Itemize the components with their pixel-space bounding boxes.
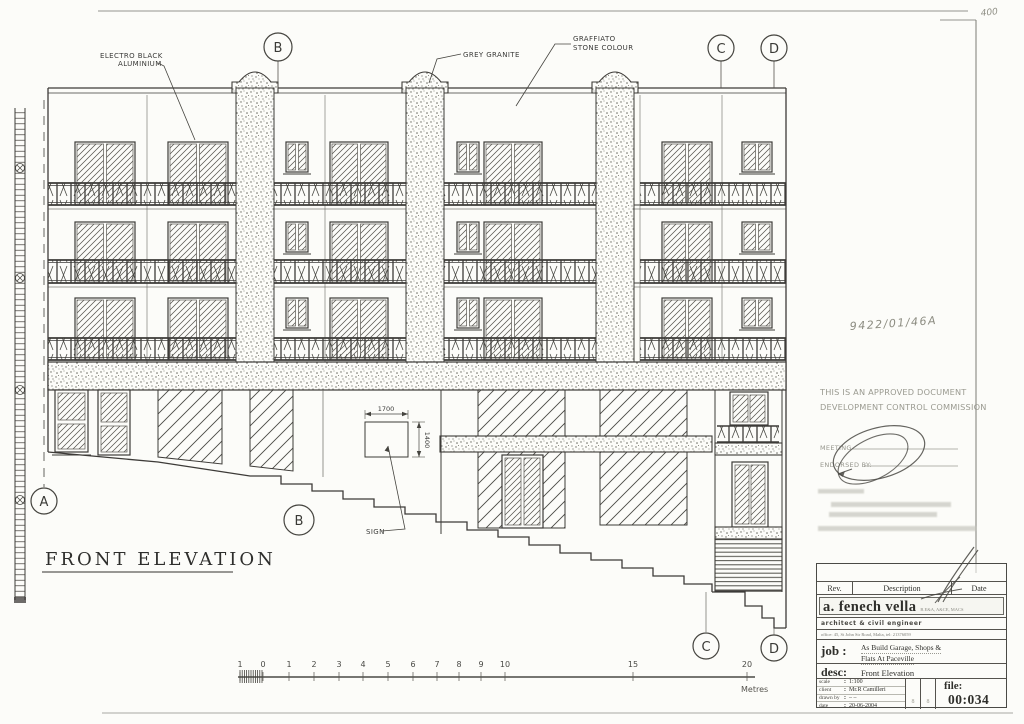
window-pane <box>459 224 467 250</box>
date-header: Date <box>952 582 1006 594</box>
scale-tick: 6 <box>410 660 415 669</box>
scale-tick: 1 <box>286 660 291 669</box>
balcony-railing <box>274 338 406 360</box>
rev-header: Rev. <box>817 582 853 594</box>
desc-label: desc: <box>817 664 861 680</box>
scale-tick: 7 <box>434 660 439 669</box>
file-cell: file: 00:034 <box>936 679 1006 709</box>
window-pane <box>288 224 296 250</box>
job-line-1: As Build Garage, Shops & <box>861 643 941 654</box>
sign-leader <box>382 446 405 531</box>
firm-address: office: 45, St John Str Road, Malta, tel… <box>817 629 1006 639</box>
pilaster <box>596 88 634 362</box>
door-pane <box>58 393 85 420</box>
balcony-railing <box>48 338 236 360</box>
scale-tick: 2 <box>311 660 316 669</box>
drawn-by-label: drawn by <box>817 695 844 701</box>
window-pane <box>735 465 749 524</box>
balcony-railing <box>640 260 786 283</box>
grid-marker-c-bottom: C <box>693 633 719 659</box>
scale-tick: 3 <box>336 660 341 669</box>
description-header: Description <box>853 582 952 594</box>
window-pane <box>744 144 756 170</box>
desc-value: Front Elevation <box>861 668 914 678</box>
window-pane <box>744 224 756 250</box>
revision-header-row: Rev. Description Date <box>817 581 1006 594</box>
grid-label: B <box>295 514 304 529</box>
scale-tick: 15 <box>628 660 638 669</box>
sign-annotation: 1700 1400 SIGN <box>365 405 431 536</box>
sign-width-dim: 1700 <box>378 405 395 413</box>
door-pane <box>58 424 85 449</box>
file-label: file: <box>944 680 962 692</box>
grid-marker-d-top: D <box>761 35 787 88</box>
door-pane <box>101 426 127 452</box>
scale-tick: 5 <box>385 660 390 669</box>
window-pane <box>470 300 478 326</box>
client-label: client <box>817 687 844 693</box>
drawing-title: FRONT ELEVATION <box>45 549 276 570</box>
strip-rungs <box>15 108 25 600</box>
window-pane <box>744 300 756 326</box>
scale-tick: 4 <box>360 660 365 669</box>
label-graffiato: GRAFFIATO <box>573 35 616 43</box>
job-line-2: Flats At Paceville <box>861 654 914 665</box>
firm-name-row: a. fenech vella B.E&A, A&CE, MACS <box>817 594 1006 617</box>
window-pane <box>288 300 296 326</box>
balcony-railing <box>274 183 406 205</box>
firm-role: architect & civil engineer <box>817 617 1006 629</box>
scale-tick: 0 <box>260 660 265 669</box>
drawn-by-value: – – <box>849 695 857 701</box>
scale-label: scale <box>817 679 844 685</box>
firm-credentials: B.E&A, A&CE, MACS <box>920 607 963 612</box>
stamp-line-2: DEVELOPMENT CONTROL COMMISSION <box>820 402 987 412</box>
fascia-band <box>440 436 712 452</box>
pilaster <box>236 88 274 362</box>
scale-tick: 1 <box>237 660 242 669</box>
pilaster <box>406 88 444 362</box>
leader-line <box>158 63 195 140</box>
grid-label: D <box>769 642 779 657</box>
corner-note: 400 <box>980 7 998 19</box>
stone-band <box>48 362 786 390</box>
levelling-strip <box>14 108 26 603</box>
window-pane <box>299 300 307 326</box>
client-row: client : Mr.R Camilleri <box>817 686 905 694</box>
reference-number: 9422/01/46A <box>849 314 937 333</box>
balcony-railing <box>640 338 786 360</box>
balcony-railing <box>444 260 596 283</box>
shopfront-glazing <box>158 390 222 464</box>
grid-marker-a-bottom: A <box>31 488 57 514</box>
window-pane <box>759 300 771 326</box>
shopfront-glazing <box>600 390 687 525</box>
label-grey-granite: GREY GRANITE <box>463 51 520 59</box>
grid-marker-c-top: C <box>708 35 734 88</box>
meeting-label: MEETING <box>820 444 852 452</box>
scale-tick: 10 <box>500 660 510 669</box>
window-pane <box>470 224 478 250</box>
scale-value: 1:100 <box>849 679 863 685</box>
firm-name: a. fenech vella <box>823 599 916 616</box>
endorsed-by-label: ENDORSED BY: <box>820 461 872 469</box>
door-pane <box>505 458 521 525</box>
drawn-by-row: drawn by : – – <box>817 694 905 702</box>
file-number: 00:034 <box>948 692 989 708</box>
approval-stamp: THIS IS AN APPROVED DOCUMENT DEVELOPMENT… <box>819 387 987 412</box>
desc-row: desc: Front Elevation <box>817 663 1006 678</box>
meta-row: scale : 1:100 client : Mr.R Camilleri dr… <box>817 678 1006 709</box>
job-label: job : <box>817 640 861 663</box>
balcony-railing <box>717 426 779 442</box>
balcony-railing <box>640 183 786 205</box>
grid-label: C <box>716 42 725 57</box>
ground-floor <box>48 390 786 635</box>
scale-unit: Metres <box>741 685 768 694</box>
title-block-empty-row <box>817 564 1006 581</box>
window-pane <box>470 144 478 170</box>
window-pane <box>288 144 296 170</box>
window-pane <box>459 144 467 170</box>
strip-base <box>14 597 26 603</box>
label-electro-black: ELECTRO BLACK <box>100 52 163 60</box>
approval-col-1: 8 <box>906 679 921 709</box>
stamp-line-1: THIS IS AN APPROVED DOCUMENT <box>819 387 967 397</box>
window-pane <box>751 465 765 524</box>
roller-shutter <box>715 539 782 591</box>
window-pane <box>759 144 771 170</box>
grid-label: B <box>274 41 283 56</box>
balcony-railing <box>48 260 236 283</box>
stone-strip <box>715 443 782 455</box>
leader-line <box>516 44 571 106</box>
date-row: date : 20-06-2004 <box>817 701 905 709</box>
door-pane <box>101 393 127 422</box>
shopfront-glazing <box>250 390 293 471</box>
window-pane <box>750 395 765 422</box>
door-pane <box>524 458 540 525</box>
label-aluminium: ALUMINIUM <box>118 60 162 68</box>
balcony-railing <box>48 183 236 205</box>
scale-bar: 1 0 1 2 3 4 5 6 7 8 9 10 15 20 Metres <box>237 660 768 694</box>
balcony-railing <box>274 260 406 283</box>
drawing-sheet: 400 <box>0 0 1024 724</box>
window-pane <box>299 144 307 170</box>
grid-label: C <box>701 640 710 655</box>
date-value: 20-06-2004 <box>849 703 877 709</box>
label-stone-colour: STONE COLOUR <box>573 44 633 52</box>
grid-marker-d-bottom: D <box>761 635 787 661</box>
stone-strip <box>715 527 782 539</box>
sign-box <box>365 422 408 457</box>
grid-label: A <box>40 495 49 510</box>
grid-label: D <box>769 42 779 57</box>
scale-tick: 20 <box>742 660 752 669</box>
title-block: Rev. Description Date a. fenech vella B.… <box>816 563 1007 708</box>
approval-col-2: 8 <box>921 679 936 709</box>
scale-tick: 8 <box>456 660 461 669</box>
job-row: job : As Build Garage, Shops & Flats At … <box>817 639 1006 663</box>
window-pane <box>459 300 467 326</box>
scale-row: scale : 1:100 <box>817 679 905 686</box>
window-pane <box>759 224 771 250</box>
balcony-railing <box>444 338 596 360</box>
client-value: Mr.R Camilleri <box>849 687 886 693</box>
pavement-steps-lower <box>712 592 786 628</box>
facade-upper-floors <box>48 72 786 628</box>
grid-marker-b-bottom: B <box>284 505 314 535</box>
balcony-railing <box>444 183 596 205</box>
sign-height-dim: 1400 <box>423 432 431 449</box>
sign-label: SIGN <box>366 528 385 536</box>
date-label: date <box>817 703 844 709</box>
endorsement-block: MEETING ENDORSED BY: <box>820 444 958 469</box>
scale-tick: 9 <box>478 660 483 669</box>
window-pane <box>733 395 748 422</box>
window-pane <box>299 224 307 250</box>
